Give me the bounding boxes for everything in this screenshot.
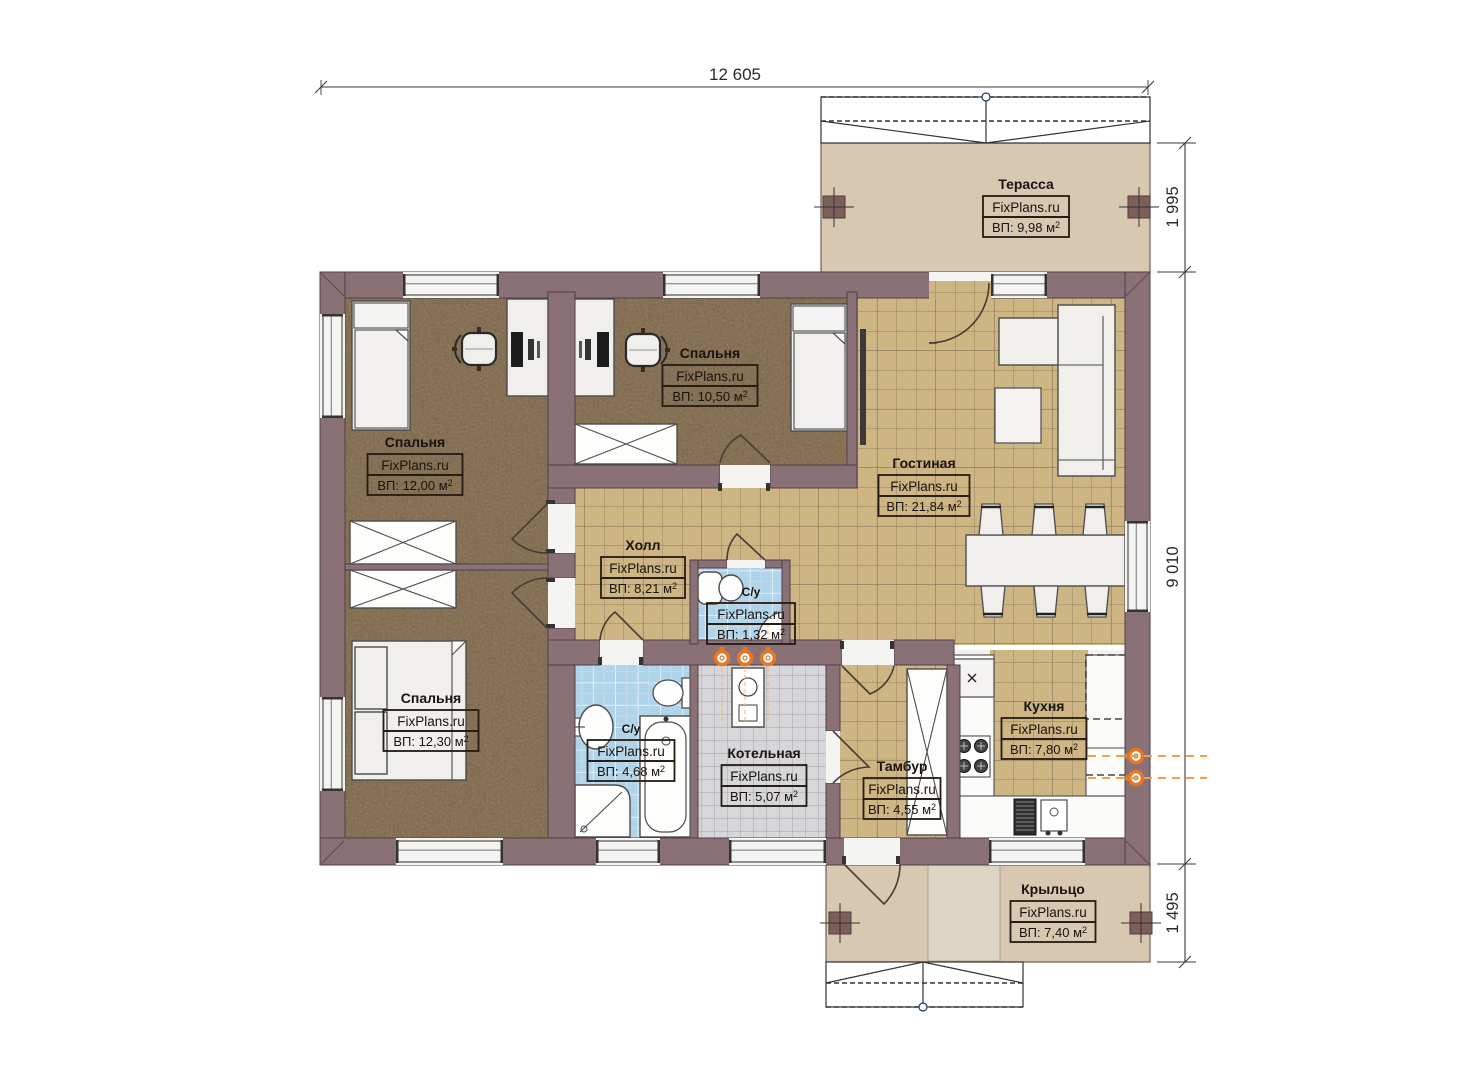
svg-text:ВП: 7,80 м2: ВП: 7,80 м2 xyxy=(1010,742,1078,757)
svg-text:Терасса: Терасса xyxy=(998,176,1054,192)
svg-text:ВП: 9,98 м2: ВП: 9,98 м2 xyxy=(992,220,1060,235)
svg-text:ВП: 5,07 м2: ВП: 5,07 м2 xyxy=(730,789,798,804)
svg-text:9 010: 9 010 xyxy=(1164,546,1182,587)
svg-text:12 605: 12 605 xyxy=(709,65,761,84)
svg-text:FixPlans.ru: FixPlans.ru xyxy=(992,200,1060,215)
svg-text:ВП: 8,21 м2: ВП: 8,21 м2 xyxy=(609,581,677,596)
svg-text:FixPlans.ru: FixPlans.ru xyxy=(676,369,744,384)
svg-text:ВП: 12,00 м2: ВП: 12,00 м2 xyxy=(377,478,452,493)
svg-text:Котельная: Котельная xyxy=(727,745,800,761)
svg-text:С/у: С/у xyxy=(622,722,641,736)
svg-text:Тамбур: Тамбур xyxy=(877,758,928,774)
svg-text:FixPlans.ru: FixPlans.ru xyxy=(717,607,785,622)
svg-text:FixPlans.ru: FixPlans.ru xyxy=(597,744,665,759)
svg-text:FixPlans.ru: FixPlans.ru xyxy=(1010,722,1078,737)
svg-text:ВП: 10,50 м2: ВП: 10,50 м2 xyxy=(672,389,747,404)
svg-text:Холл: Холл xyxy=(625,537,660,553)
svg-text:FixPlans.ru: FixPlans.ru xyxy=(890,479,958,494)
svg-text:Спальня: Спальня xyxy=(680,345,740,361)
svg-text:ВП: 7,40 м2: ВП: 7,40 м2 xyxy=(1019,925,1087,940)
svg-text:1 495: 1 495 xyxy=(1164,892,1182,933)
svg-text:FixPlans.ru: FixPlans.ru xyxy=(1019,905,1087,920)
svg-text:FixPlans.ru: FixPlans.ru xyxy=(397,714,465,729)
svg-text:ВП: 4,55 м2: ВП: 4,55 м2 xyxy=(868,802,936,817)
svg-text:1 995: 1 995 xyxy=(1164,186,1182,227)
svg-text:ВП: 12,30 м2: ВП: 12,30 м2 xyxy=(393,734,468,749)
svg-text:ВП: 4,68 м2: ВП: 4,68 м2 xyxy=(597,764,665,779)
svg-text:FixPlans.ru: FixPlans.ru xyxy=(730,769,798,784)
svg-text:Спальня: Спальня xyxy=(401,690,461,706)
svg-text:FixPlans.ru: FixPlans.ru xyxy=(868,782,936,797)
svg-text:Кухня: Кухня xyxy=(1024,698,1065,714)
svg-text:FixPlans.ru: FixPlans.ru xyxy=(609,561,677,576)
svg-text:С/у: С/у xyxy=(742,585,761,599)
svg-text:Крыльцо: Крыльцо xyxy=(1021,881,1085,897)
svg-text:ВП: 1,32 м2: ВП: 1,32 м2 xyxy=(717,627,785,642)
svg-text:Гостиная: Гостиная xyxy=(892,455,955,471)
svg-text:FixPlans.ru: FixPlans.ru xyxy=(381,458,449,473)
svg-text:Спальня: Спальня xyxy=(385,434,445,450)
svg-text:ВП: 21,84 м2: ВП: 21,84 м2 xyxy=(886,499,961,514)
